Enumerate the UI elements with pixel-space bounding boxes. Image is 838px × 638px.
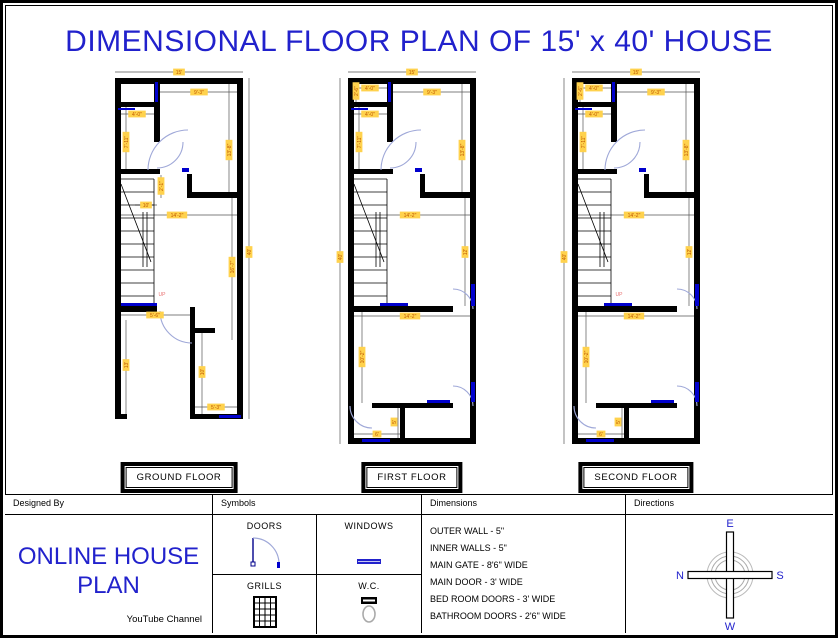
floor-label-ground: GROUND FLOOR — [126, 467, 233, 488]
svg-text:9'-3": 9'-3" — [651, 90, 661, 96]
svg-text:14'-2": 14'-2" — [404, 314, 417, 320]
svg-text:13'-8": 13'-8" — [227, 143, 233, 156]
svg-text:5': 5' — [616, 420, 622, 424]
svg-text:14'-2": 14'-2" — [628, 213, 641, 219]
svg-text:9'-3": 9'-3" — [427, 90, 437, 96]
symbols-panel: Symbols DOORS — [212, 495, 421, 633]
svg-text:15': 15' — [409, 70, 416, 76]
svg-text:4'-0": 4'-0" — [365, 86, 375, 92]
svg-text:6': 6' — [599, 432, 603, 438]
brand-name: ONLINE HOUSE PLAN — [5, 543, 212, 601]
page-title: DIMENSIONAL FLOOR PLAN OF 15' x 40' HOUS… — [3, 25, 835, 59]
floor-label-box-ground: GROUND FLOOR — [121, 462, 238, 493]
floor-label-first: FIRST FLOOR — [366, 467, 457, 488]
svg-text:2'-6": 2'-6" — [354, 86, 360, 96]
door-symbol-icon — [213, 535, 316, 574]
svg-text:14'-2": 14'-2" — [404, 213, 417, 219]
title-block: Designed By ONLINE HOUSE PLAN YouTube Ch… — [5, 494, 833, 633]
svg-text:14'-2": 14'-2" — [171, 213, 184, 219]
svg-text:16'-7": 16'-7" — [230, 260, 236, 273]
svg-text:40': 40' — [562, 254, 568, 261]
dimensions-header: Dimensions — [422, 495, 625, 515]
designed-by-header: Designed By — [5, 495, 212, 515]
dimension-item: INNER WALLS - 5" — [430, 540, 625, 557]
directions-panel: Directions E W N S — [625, 495, 833, 633]
svg-text:9'-3": 9'-3" — [194, 90, 204, 96]
svg-text:7'-11": 7'-11" — [124, 136, 130, 149]
brand-line1: ONLINE HOUSE — [5, 543, 212, 572]
grill-symbol-icon — [213, 595, 316, 634]
svg-text:14'-2": 14'-2" — [628, 314, 641, 320]
compass-south-label: S — [776, 570, 783, 582]
dimension-item: BED ROOM DOORS - 3' WIDE — [430, 591, 625, 608]
floor-label-second: SECOND FLOOR — [583, 467, 688, 488]
svg-text:UP: UP — [616, 292, 624, 298]
svg-text:4'-0": 4'-0" — [589, 86, 599, 92]
svg-text:10'-2": 10'-2" — [584, 350, 590, 363]
dimension-item: BATHROOM DOORS - 2'6" WIDE — [430, 608, 625, 625]
svg-text:4'-0": 4'-0" — [589, 112, 599, 118]
symbol-doors-cell: DOORS — [213, 515, 317, 575]
dimension-item: OUTER WALL - 5" — [430, 523, 625, 540]
svg-text:7'-11": 7'-11" — [357, 136, 363, 149]
floor-plan-second: 15'4'-0"2'-6"9'-3"4'-0"7'-11"13'-8"14'-2… — [556, 62, 721, 448]
drawing-sheet: DIMENSIONAL FLOOR PLAN OF 15' x 40' HOUS… — [0, 0, 838, 638]
svg-text:12': 12' — [463, 249, 469, 256]
svg-text:13'-8": 13'-8" — [460, 143, 466, 156]
svg-text:5'-3": 5'-3" — [211, 405, 221, 411]
svg-text:10'-2": 10'-2" — [360, 350, 366, 363]
symbols-header: Symbols — [213, 495, 421, 515]
symbol-doors-label: DOORS — [213, 521, 316, 531]
symbol-windows-label: WINDOWS — [317, 521, 421, 531]
compass-east-label: E — [726, 518, 733, 530]
svg-text:2'-6": 2'-6" — [578, 86, 584, 96]
svg-text:10': 10' — [200, 369, 206, 376]
svg-text:13'-8": 13'-8" — [684, 143, 690, 156]
svg-text:15': 15' — [176, 70, 183, 76]
svg-text:7'-11": 7'-11" — [581, 136, 587, 149]
brand-subtitle: YouTube Channel — [127, 614, 202, 625]
svg-text:5'-6": 5'-6" — [150, 313, 160, 319]
floor-plan-first: 15'4'-0"2'-6"9'-3"4'-0"7'-11"13'-8"14'-2… — [332, 62, 497, 448]
symbol-windows-cell: WINDOWS — [317, 515, 421, 575]
svg-text:UP: UP — [159, 292, 167, 298]
svg-text:2'-1": 2'-1" — [159, 181, 165, 191]
floor-plan-ground: 15'9'-3"4'-0"7'-11"13'-8"2'-1"10'14'-2"1… — [99, 62, 264, 448]
svg-text:4'-0": 4'-0" — [365, 112, 375, 118]
floor-label-box-first: FIRST FLOOR — [361, 462, 462, 493]
wc-symbol-icon — [317, 595, 421, 630]
window-symbol-icon — [317, 553, 421, 571]
svg-text:40': 40' — [338, 254, 344, 261]
svg-text:13': 13' — [124, 362, 130, 369]
floor-label-box-second: SECOND FLOOR — [578, 462, 693, 493]
designed-by-panel: Designed By ONLINE HOUSE PLAN YouTube Ch… — [5, 495, 212, 633]
svg-text:40': 40' — [247, 249, 253, 256]
dimension-item: MAIN DOOR - 3' WIDE — [430, 574, 625, 591]
dimensions-list: OUTER WALL - 5" INNER WALLS - 5" MAIN GA… — [422, 515, 625, 625]
dimensions-panel: Dimensions OUTER WALL - 5" INNER WALLS -… — [421, 495, 625, 633]
svg-text:15': 15' — [633, 70, 640, 76]
compass-north-label: N — [676, 570, 684, 582]
svg-text:12': 12' — [687, 249, 693, 256]
compass-west-label: W — [724, 621, 735, 632]
svg-text:5': 5' — [392, 420, 398, 424]
dimension-item: MAIN GATE - 8'6" WIDE — [430, 557, 625, 574]
compass-icon: E W N S — [664, 516, 796, 632]
symbol-grills-cell: GRILLS — [213, 575, 317, 634]
symbol-wc-label: W.C. — [317, 581, 421, 591]
symbol-wc-cell: W.C. — [317, 575, 421, 634]
directions-header: Directions — [626, 495, 833, 515]
svg-text:4'-0": 4'-0" — [132, 112, 142, 118]
symbol-grills-label: GRILLS — [213, 581, 316, 591]
svg-text:6': 6' — [375, 432, 379, 438]
brand-line2: PLAN — [5, 572, 212, 601]
svg-text:10': 10' — [143, 203, 150, 209]
